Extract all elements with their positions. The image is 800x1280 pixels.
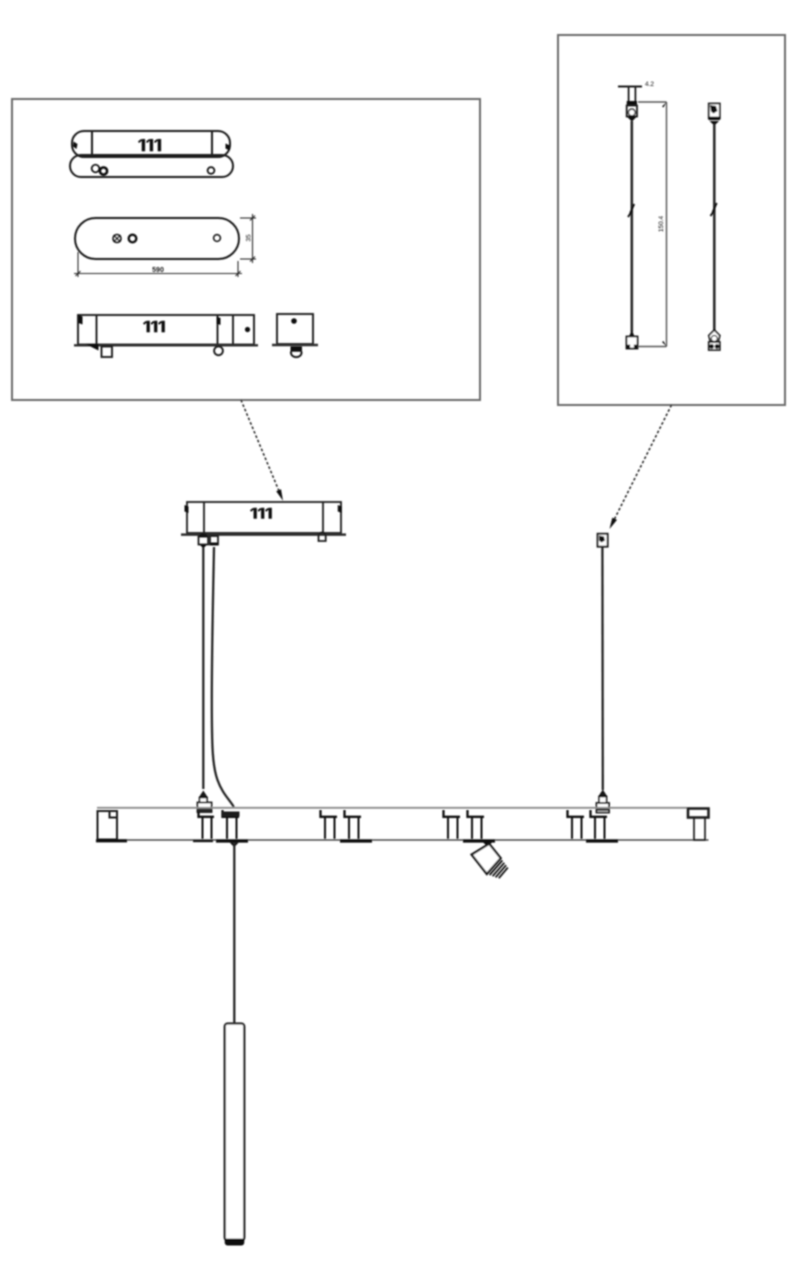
svg-text:35: 35 <box>246 234 253 242</box>
svg-text:150.4: 150.4 <box>658 215 665 232</box>
svg-text:590: 590 <box>152 267 164 274</box>
svg-text:4.2: 4.2 <box>645 81 654 88</box>
